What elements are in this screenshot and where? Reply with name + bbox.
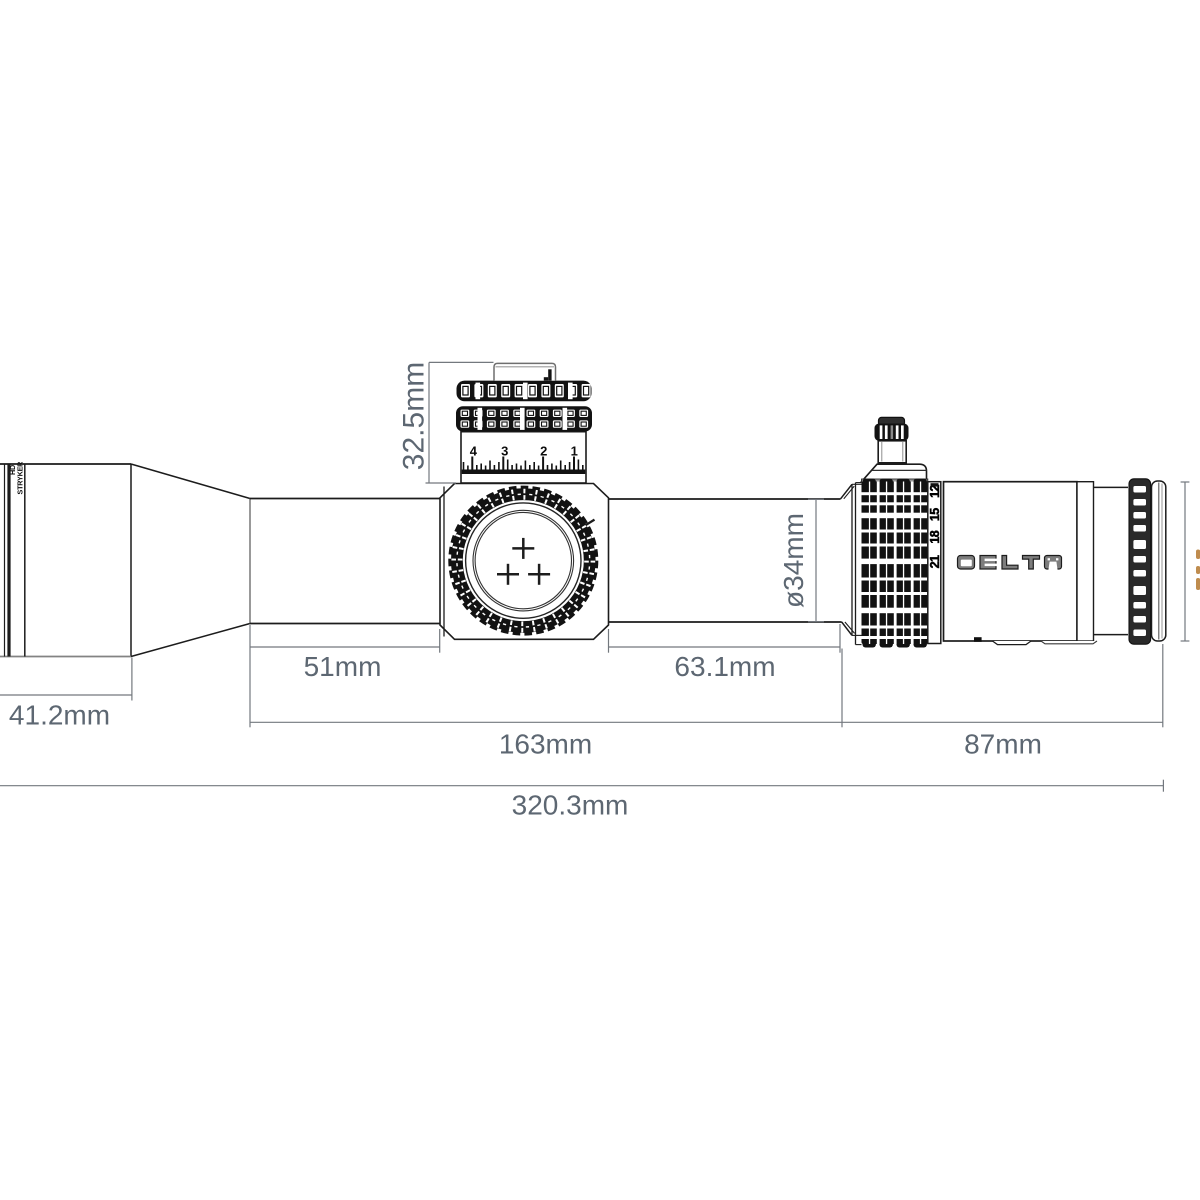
svg-text:4: 4 bbox=[470, 444, 478, 459]
svg-text:87mm: 87mm bbox=[964, 729, 1042, 760]
svg-text:1: 1 bbox=[571, 444, 578, 459]
svg-text:320.3mm: 320.3mm bbox=[512, 790, 629, 821]
svg-text:41.2mm: 41.2mm bbox=[9, 700, 110, 731]
svg-text:21: 21 bbox=[928, 555, 942, 568]
svg-text:18: 18 bbox=[928, 530, 942, 543]
svg-text:63.1mm: 63.1mm bbox=[674, 651, 775, 682]
svg-text:ø34mm: ø34mm bbox=[778, 513, 809, 608]
svg-text:HD: HD bbox=[8, 465, 17, 475]
svg-text:32.5mm: 32.5mm bbox=[398, 362, 431, 470]
svg-text:163mm: 163mm bbox=[499, 729, 592, 760]
svg-text:3: 3 bbox=[501, 444, 508, 459]
svg-text:51mm: 51mm bbox=[304, 651, 382, 682]
svg-text:15: 15 bbox=[928, 508, 942, 521]
svg-text:2: 2 bbox=[540, 444, 547, 459]
